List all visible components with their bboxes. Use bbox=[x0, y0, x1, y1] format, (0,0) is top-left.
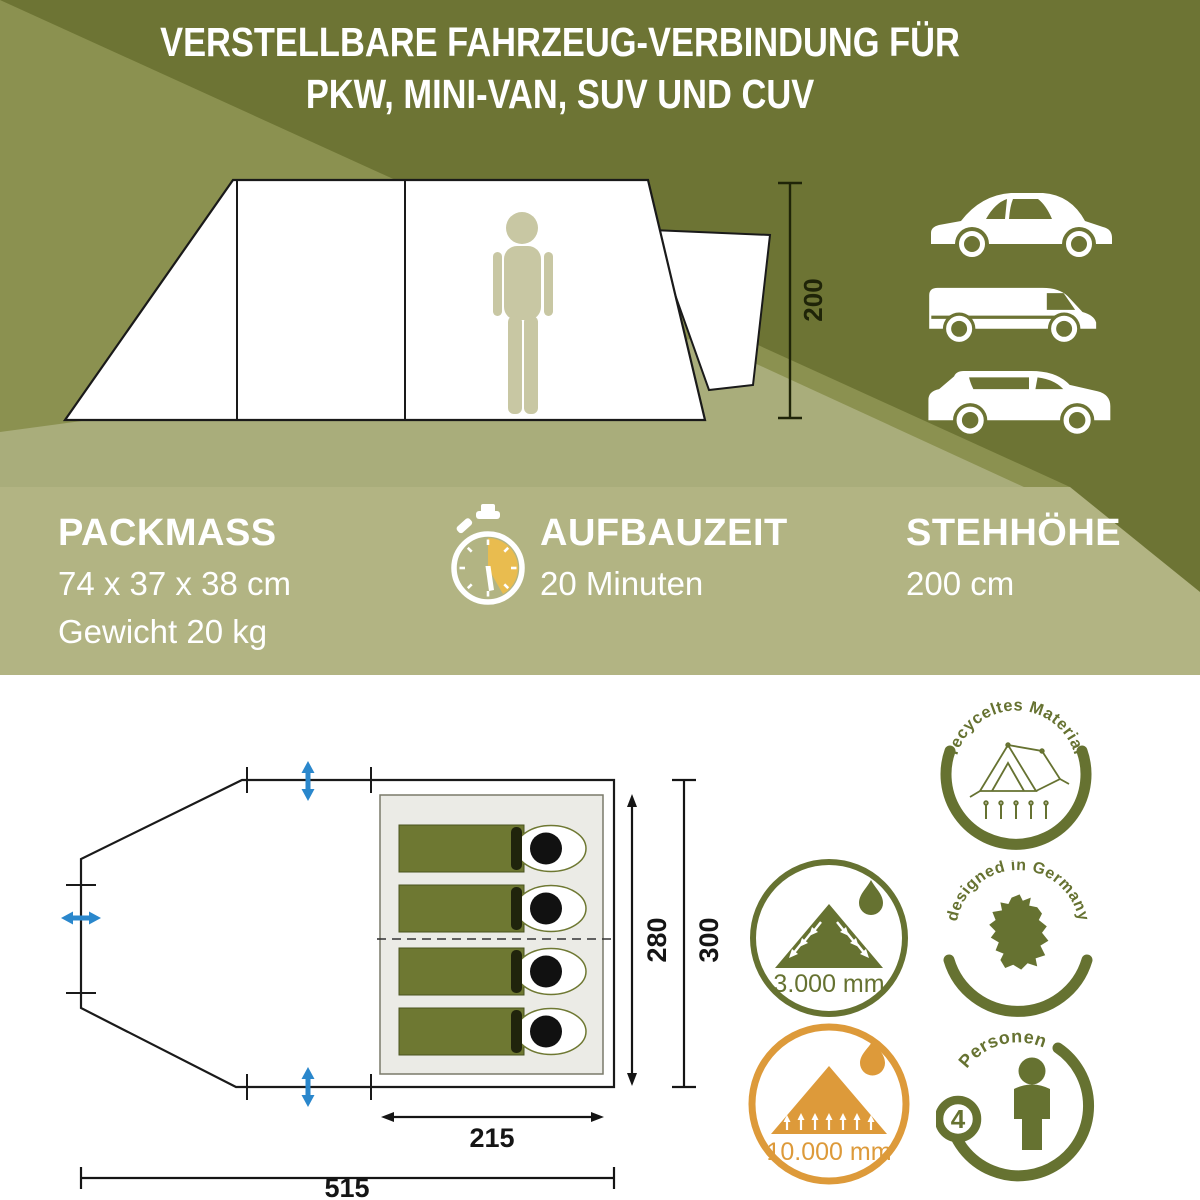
person-icon bbox=[1014, 1058, 1050, 1151]
persons-badge: Personen 4 bbox=[936, 1023, 1100, 1187]
outer-depth-dimension: 300 bbox=[672, 780, 724, 1087]
person-count-value: 4 bbox=[951, 1104, 966, 1134]
sleeping-bag bbox=[399, 825, 586, 872]
packmass-size: 74 x 37 x 38 cm bbox=[58, 565, 291, 603]
packmass-title: PACKMASS bbox=[58, 512, 277, 555]
waterproof-floor-label: 10.000 mm bbox=[766, 1138, 891, 1166]
headline-line1: VERSTELLBARE FAHRZEUG-VERBINDUNG FÜR bbox=[90, 16, 1031, 68]
waterproof-fly-label: 3.000 mm bbox=[773, 970, 884, 998]
aufbauzeit-value: 20 Minuten bbox=[540, 565, 703, 603]
recycled-material-badge: recyceltes Material bbox=[934, 691, 1098, 855]
tent-pegs-icon bbox=[984, 801, 1047, 819]
headline-line2: PKW, MINI-VAN, SUV UND CUV bbox=[90, 68, 1031, 120]
length-dimension: 515 bbox=[81, 1167, 614, 1200]
headline: VERSTELLBARE FAHRZEUG-VERBINDUNG FÜR PKW… bbox=[90, 16, 1031, 120]
tent-body bbox=[65, 180, 705, 420]
waterproof-fly-badge: 3.000 mm bbox=[746, 855, 912, 1021]
tent-sketch-icon bbox=[970, 743, 1069, 797]
sleeping-bag bbox=[399, 948, 586, 995]
aufbauzeit-title: AUFBAUZEIT bbox=[540, 512, 788, 555]
stopwatch-icon bbox=[448, 502, 528, 614]
packmass-weight: Gewicht 20 kg bbox=[58, 613, 267, 651]
inner-depth-dimension: 280 bbox=[627, 794, 672, 1086]
sleeping-bag bbox=[399, 1008, 586, 1055]
designed-in-germany-badge: designed in Germany bbox=[938, 860, 1098, 1020]
stehhoehe-value: 200 cm bbox=[906, 565, 1014, 603]
water-drop-icon bbox=[859, 880, 883, 915]
stehhoehe-title: STEHHÖHE bbox=[906, 512, 1121, 555]
car-icon bbox=[931, 193, 1112, 260]
height-dimension-label: 200 bbox=[798, 278, 828, 321]
tent-side-view: 200 bbox=[0, 150, 1200, 480]
floor-plan: 280 300 215 515 bbox=[0, 675, 740, 1200]
germany-map-icon bbox=[989, 894, 1048, 969]
mini-van-icon bbox=[929, 288, 1096, 345]
recycled-badge-label: recyceltes Material bbox=[944, 696, 1089, 757]
inner-width-dimension: 215 bbox=[381, 1112, 604, 1153]
outer-depth-label: 300 bbox=[694, 917, 724, 962]
svg-text:recyceltes Material: recyceltes Material bbox=[944, 696, 1089, 757]
inner-width-label: 215 bbox=[469, 1123, 514, 1153]
suv-icon bbox=[928, 371, 1110, 437]
inner-depth-label: 280 bbox=[642, 917, 672, 962]
waterproof-floor-badge: 10.000 mm bbox=[744, 1019, 914, 1189]
tent-infographic: VERSTELLBARE FAHRZEUG-VERBINDUNG FÜR PKW… bbox=[0, 0, 1200, 1200]
length-label: 515 bbox=[324, 1173, 369, 1200]
sleeping-bag bbox=[399, 885, 586, 932]
